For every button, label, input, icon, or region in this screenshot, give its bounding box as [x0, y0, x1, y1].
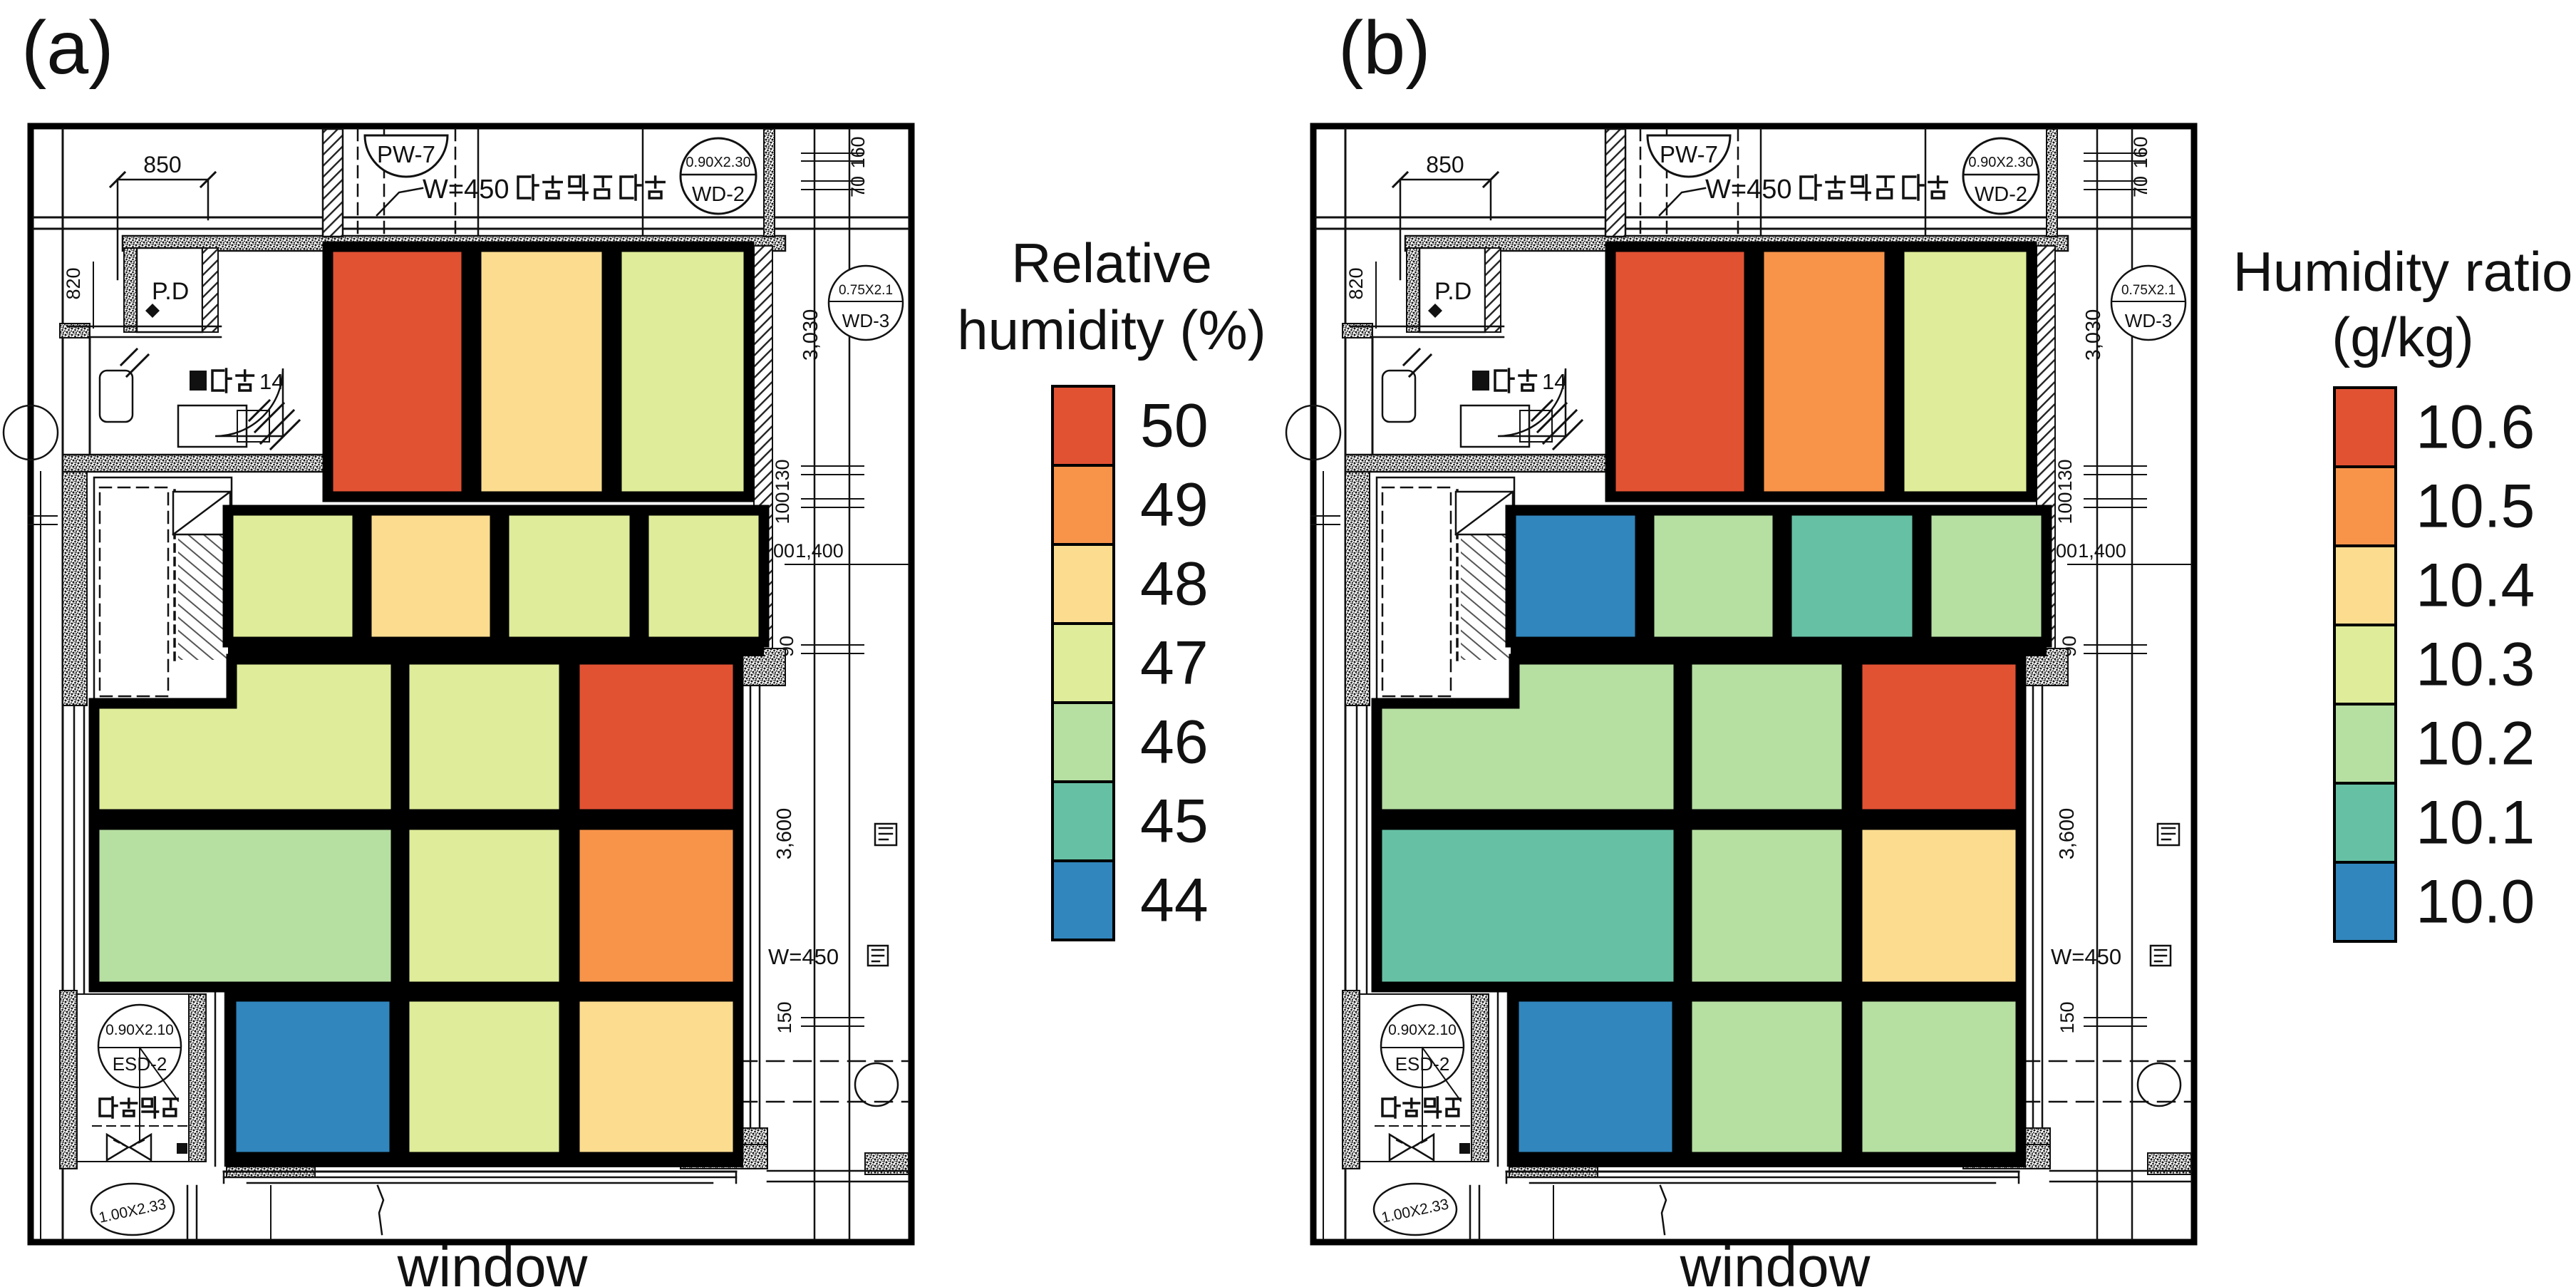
- svg-text:(g/kg): (g/kg): [2332, 306, 2473, 368]
- svg-text:10.1: 10.1: [2416, 789, 2535, 857]
- svg-text:10.5: 10.5: [2416, 472, 2535, 541]
- svg-text:window: window: [397, 1235, 588, 1287]
- svg-text:(a): (a): [21, 6, 114, 90]
- svg-text:window: window: [1680, 1235, 1871, 1287]
- svg-text:49: 49: [1140, 471, 1209, 539]
- svg-text:Humidity ratio: Humidity ratio: [2233, 240, 2573, 303]
- svg-text:Relative: Relative: [1011, 232, 1212, 294]
- svg-text:humidity (%): humidity (%): [957, 299, 1266, 361]
- svg-text:48: 48: [1140, 550, 1209, 619]
- svg-text:10.3: 10.3: [2416, 631, 2535, 699]
- svg-text:10.6: 10.6: [2416, 393, 2535, 462]
- svg-text:46: 46: [1140, 708, 1209, 777]
- svg-text:10.0: 10.0: [2416, 868, 2535, 936]
- svg-text:(b): (b): [1338, 6, 1431, 90]
- svg-text:47: 47: [1140, 629, 1209, 698]
- svg-text:10.4: 10.4: [2416, 552, 2535, 620]
- svg-text:45: 45: [1140, 787, 1209, 856]
- svg-text:10.2: 10.2: [2416, 710, 2535, 778]
- svg-text:50: 50: [1140, 392, 1209, 460]
- svg-text:44: 44: [1140, 867, 1209, 935]
